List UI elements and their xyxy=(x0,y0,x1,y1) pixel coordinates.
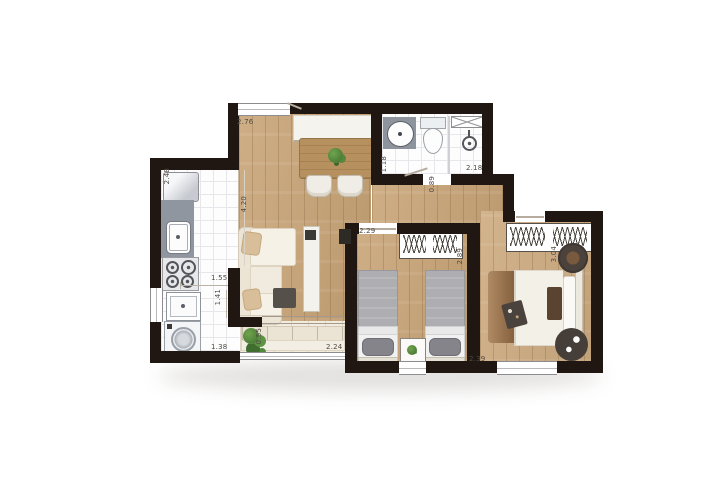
wall-kitchen-bottom xyxy=(150,351,240,363)
dim-line xyxy=(244,170,245,266)
dim-bedroom1-width: 2.29 xyxy=(359,228,375,235)
balcony-railing xyxy=(240,352,345,360)
single-bed-icon xyxy=(425,270,463,362)
tray-item xyxy=(515,315,519,319)
tv-icon xyxy=(339,229,351,244)
wall-kitchen-left xyxy=(150,158,161,363)
dim-living-width: 2.76 xyxy=(237,119,253,126)
dim-balcony-width: 2.24 xyxy=(326,344,342,351)
washer-control xyxy=(167,324,172,329)
media-console xyxy=(305,230,316,240)
bed-pillow xyxy=(429,338,461,356)
dim-bedroom2-length: 3.04 xyxy=(551,246,558,262)
shower-icon xyxy=(462,136,477,151)
dim-bathroom-width: 2.18 xyxy=(466,165,482,172)
dining-chair-icon xyxy=(337,175,363,197)
pouf-icon xyxy=(558,243,588,273)
bed-accent-pillow xyxy=(547,287,562,320)
stove-burner xyxy=(181,275,194,288)
dim-line xyxy=(226,290,227,318)
wall-right-upper xyxy=(482,103,493,185)
dim-bathroom-depth: 1.18 xyxy=(381,156,388,172)
stove-burner xyxy=(166,275,179,288)
dim-kitchen-width: 1.55 xyxy=(211,275,227,282)
kitchen-sink-icon xyxy=(166,221,191,254)
service-door-opening xyxy=(150,288,163,322)
wardrobe-divider xyxy=(426,234,433,254)
nightstand-plant-icon xyxy=(407,345,417,355)
dim-laundry-depth: 1.41 xyxy=(215,289,222,305)
bath-faucet xyxy=(398,132,402,136)
dim-bedroom2-width: 2.39 xyxy=(469,356,485,363)
living-room-window xyxy=(238,103,290,116)
wardrobe-divider xyxy=(545,226,553,247)
dining-chair-icon xyxy=(306,175,332,197)
bed-duvet xyxy=(425,270,465,330)
stove-burner xyxy=(166,261,179,274)
stove-burner xyxy=(181,260,196,275)
wall-bedroom-1-left xyxy=(345,223,357,373)
table-plant-icon xyxy=(328,148,343,163)
washer-drum xyxy=(171,327,196,352)
washing-machine-icon xyxy=(164,321,201,354)
sofa-icon xyxy=(238,227,296,323)
bedroom-2-window xyxy=(497,361,557,375)
faucet-icon xyxy=(176,235,180,239)
bedroom-2-door-leaf xyxy=(516,216,544,218)
side-table-icon xyxy=(273,288,296,308)
bed-pillow xyxy=(362,338,394,356)
dim-living-length: 4.20 xyxy=(241,196,248,212)
tank-drain xyxy=(181,304,185,308)
dim-balcony-depth: 0.55 xyxy=(256,328,263,344)
dim-bath-door: 0.89 xyxy=(429,176,436,192)
tv-cabinet-icon xyxy=(303,226,320,312)
shower-partition xyxy=(448,116,450,174)
wall-right-lower xyxy=(591,211,603,373)
wall-balcony-stub xyxy=(228,317,262,327)
single-bed-icon xyxy=(358,270,396,362)
sofa-pillow xyxy=(242,288,263,311)
wall-bedroom-divider xyxy=(467,223,480,373)
shower-arm xyxy=(468,130,470,137)
laundry-tank-icon xyxy=(166,292,201,321)
pouf-icon xyxy=(555,328,588,361)
bed-duvet xyxy=(358,270,398,330)
wardrobe-icon xyxy=(399,231,463,259)
dim-bedroom1-length: 2.89 xyxy=(457,248,464,264)
floor-plan: 2.76 2.48 1.18 2.18 0.89 4.20 2.29 2.89 … xyxy=(0,0,709,486)
dim-line xyxy=(180,285,230,286)
dim-laundry-width: 1.38 xyxy=(211,344,227,351)
balcony-slider-track xyxy=(262,316,345,324)
tray-item xyxy=(508,309,513,314)
bath-sink-icon xyxy=(387,121,414,147)
dim-kitchen-wall: 2.48 xyxy=(164,168,171,184)
bedroom-1-window xyxy=(399,361,426,375)
shower-screen-icon xyxy=(451,116,483,128)
dim-tick xyxy=(180,282,181,289)
